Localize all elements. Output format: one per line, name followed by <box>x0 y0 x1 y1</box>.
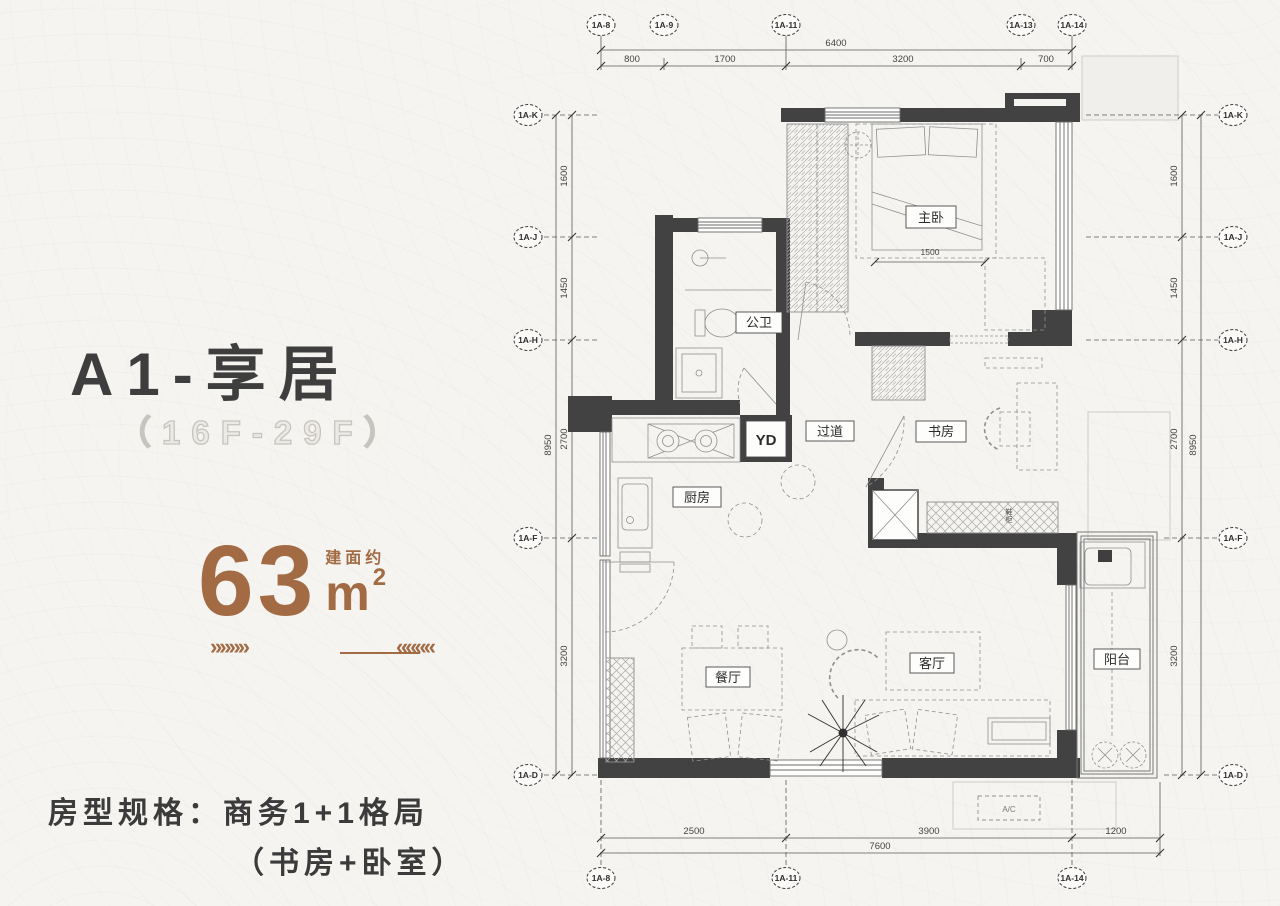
axis-label: 1A-K <box>1223 110 1244 120</box>
room-label-master: 主卧 <box>918 210 944 225</box>
dim-left-seg: 1600 <box>559 165 570 186</box>
dim-bottom-total: 7600 <box>869 841 890 852</box>
dim-right-seg: 3200 <box>1169 645 1180 666</box>
area-superscript: 2 <box>373 564 386 592</box>
chevron-left-arrows-icon: «««« <box>396 634 433 660</box>
area-figure: 63 建面约 m 2 <box>198 534 386 629</box>
spec-line-2: （书房+卧室） <box>234 838 467 882</box>
dim-left-seg: 3200 <box>559 645 570 666</box>
axis-label: 1A-D <box>518 770 538 780</box>
axis-label: 1A-9 <box>655 20 674 30</box>
dim-bottom-seg: 1200 <box>1105 826 1126 837</box>
dim-top-total: 6400 <box>825 38 846 49</box>
corner-window-stripe <box>1014 99 1066 106</box>
axis-label: 1A-H <box>1223 335 1243 345</box>
dim-left-total: 8950 <box>543 434 554 455</box>
axis-label: 1A-11 <box>775 20 798 30</box>
room-label-balcony: 阳台 <box>1104 652 1130 667</box>
dim-right-seg: 1450 <box>1169 277 1180 298</box>
bed-width-dim: 1500 <box>921 247 940 257</box>
dim-top-seg: 700 <box>1038 54 1054 65</box>
ac-unit: A/C <box>978 796 1040 820</box>
dim-left-seg: 1450 <box>559 277 570 298</box>
area-unit: m <box>325 568 369 618</box>
dim-top-seg: 1700 <box>714 54 735 65</box>
floor-range-subtitle: （16F-29F） <box>118 406 408 454</box>
axis-label: 1A-J <box>1224 232 1243 242</box>
axis-label: 1A-14 <box>1060 20 1083 30</box>
dim-right-seg: 2700 <box>1169 428 1180 449</box>
ac-label: A/C <box>1002 805 1016 814</box>
room-label-dining: 餐厅 <box>715 670 741 685</box>
axis-label: 1A-13 <box>1009 20 1032 30</box>
dim-right-total: 8950 <box>1188 434 1199 455</box>
dim-top-seg: 800 <box>624 54 640 65</box>
chevron-right-arrows-icon: »»»» <box>210 634 247 660</box>
dim-bottom-seg: 3900 <box>918 826 939 837</box>
axis-label: 1A-K <box>518 110 539 120</box>
area-value: 63 <box>198 534 317 629</box>
axis-label: 1A-8 <box>592 20 611 30</box>
room-label-duct: YD <box>756 432 777 449</box>
axis-label: 1A-8 <box>592 873 611 883</box>
plan-title: A1-享居 <box>70 326 352 413</box>
axis-label: 1A-J <box>519 232 538 242</box>
dimension-numbers: 6400 800 1700 3200 700 2500 3900 1200 76… <box>543 38 1199 852</box>
room-label-kitchen: 厨房 <box>684 490 710 505</box>
dimension-ticks <box>552 46 1205 857</box>
cabinet-label: 鞋柜 <box>1004 507 1013 525</box>
room-label-study: 书房 <box>928 424 954 439</box>
dim-top-seg: 3200 <box>892 54 913 65</box>
axis-label: 1A-H <box>518 335 538 345</box>
dim-bottom-seg: 2500 <box>683 826 704 837</box>
spec-line-1: 房型规格：商务1+1格局 <box>48 788 429 832</box>
axis-label: 1A-D <box>1223 770 1243 780</box>
dim-right-seg: 1600 <box>1169 165 1180 186</box>
axis-label: 1A-F <box>1224 533 1243 543</box>
dimension-lines <box>544 36 1218 866</box>
room-label-living: 客厅 <box>919 656 945 671</box>
room-label-hall: 过道 <box>817 424 843 439</box>
axis-label: 1A-11 <box>775 873 798 883</box>
floor-plan: 6400 800 1700 3200 700 2500 3900 1200 76… <box>500 0 1280 906</box>
axis-label: 1A-F <box>519 533 538 543</box>
axis-label: 1A-14 <box>1060 873 1083 883</box>
room-label-bath: 公卫 <box>746 315 772 330</box>
